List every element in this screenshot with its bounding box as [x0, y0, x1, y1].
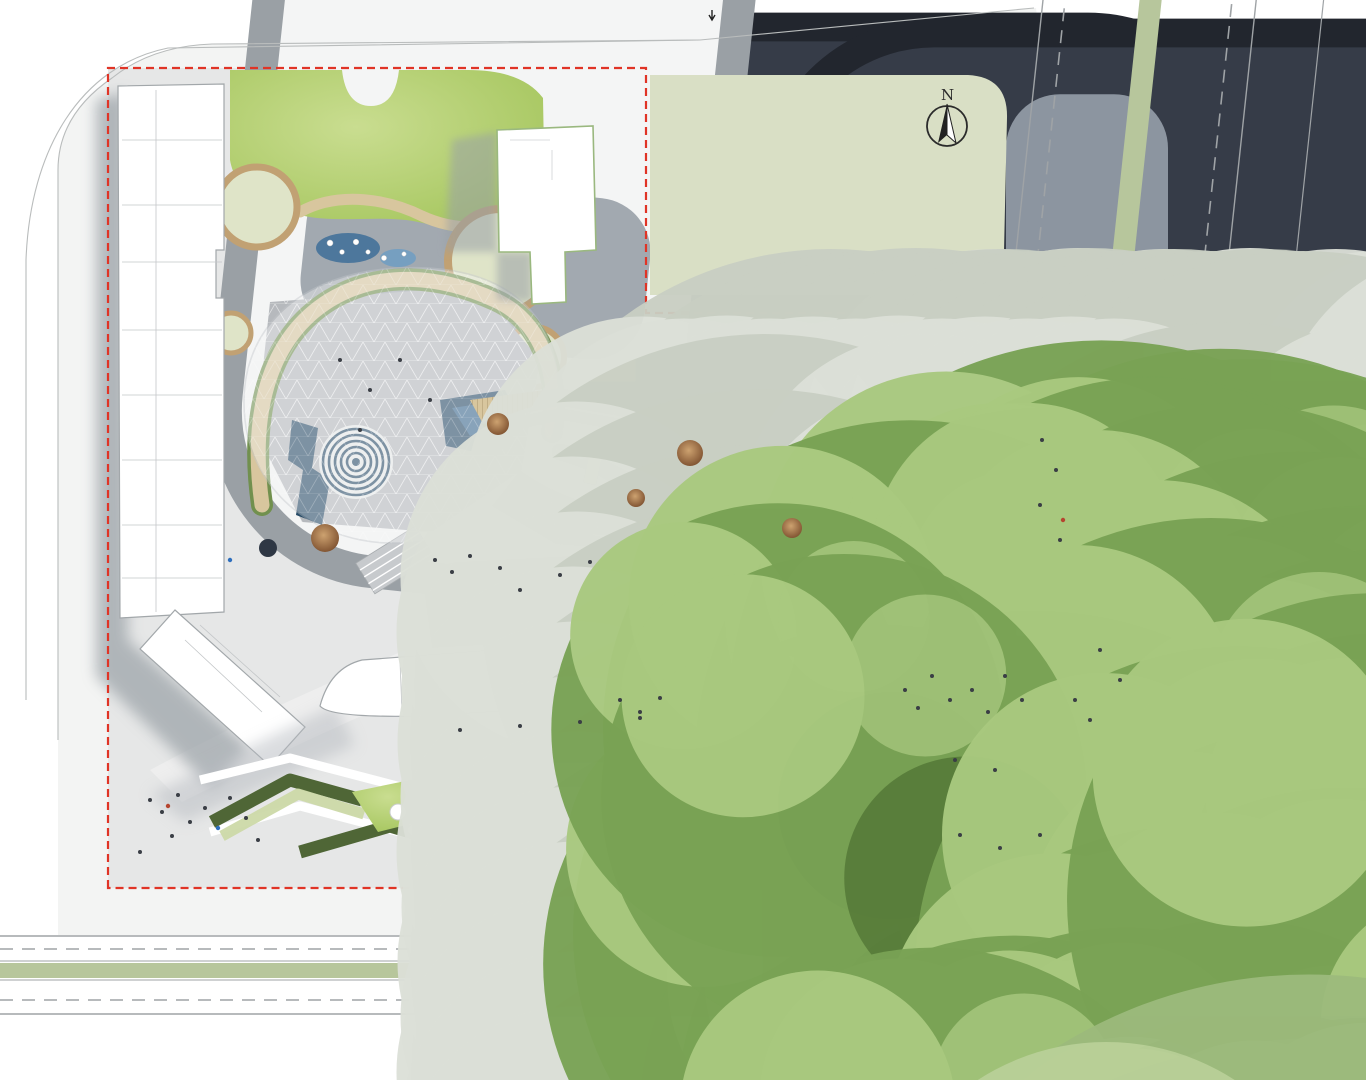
circle-pad [217, 167, 297, 247]
play-dot [259, 539, 277, 557]
site-plan-page: N [0, 0, 1366, 1080]
site-plan-canvas: N [0, 0, 1366, 1080]
north-label: N [941, 86, 954, 104]
